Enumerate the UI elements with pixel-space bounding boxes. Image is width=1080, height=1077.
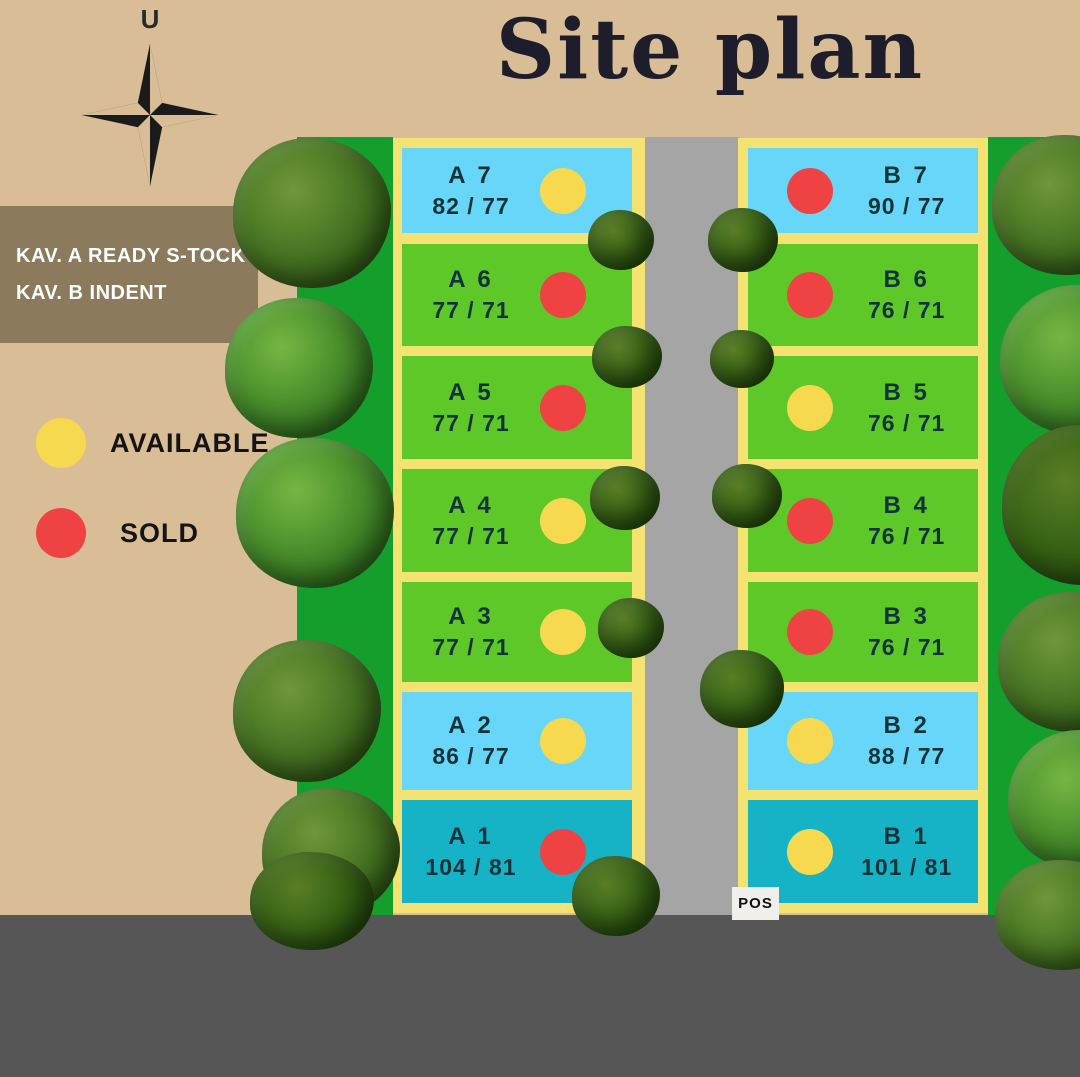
tree-icon bbox=[233, 640, 381, 782]
lot-size: 76 / 71 bbox=[849, 634, 964, 661]
available-dot-icon bbox=[36, 418, 86, 468]
pos-box: POS bbox=[732, 887, 779, 920]
lot-id: B 7 bbox=[849, 162, 964, 190]
lot-a2: A 286 / 77 bbox=[402, 692, 632, 790]
tree-icon bbox=[572, 856, 660, 936]
tree-icon bbox=[592, 326, 662, 388]
lot-size: 76 / 71 bbox=[849, 297, 964, 324]
tree-icon bbox=[710, 330, 774, 388]
lot-id: B 2 bbox=[849, 712, 964, 740]
page-title: Site plan bbox=[420, 2, 1000, 98]
available-status-dot-icon bbox=[787, 385, 833, 431]
lot-id: B 5 bbox=[849, 379, 964, 407]
lot-size: 77 / 71 bbox=[414, 523, 529, 550]
available-status-dot-icon bbox=[787, 718, 833, 764]
lot-size: 77 / 71 bbox=[414, 410, 529, 437]
lot-b2: B 288 / 77 bbox=[748, 692, 978, 790]
available-status-dot-icon bbox=[540, 168, 586, 214]
tree-icon bbox=[250, 852, 374, 950]
tree-icon bbox=[236, 438, 394, 588]
tree-icon bbox=[588, 210, 654, 270]
info-box: KAV. A READY S-TOCK KAV. B INDENT bbox=[0, 206, 258, 343]
lot-b5: B 576 / 71 bbox=[748, 356, 978, 459]
lot-b4: B 476 / 71 bbox=[748, 469, 978, 572]
lot-id: A 4 bbox=[414, 492, 529, 520]
bottom-road bbox=[0, 915, 1080, 1077]
legend-sold-row: SOLD bbox=[36, 508, 199, 558]
tree-icon bbox=[598, 598, 664, 658]
lot-b6: B 676 / 71 bbox=[748, 244, 978, 346]
info-line-kav-a: KAV. A READY S-TOCK bbox=[16, 245, 258, 268]
lot-id: B 3 bbox=[849, 603, 964, 631]
tree-icon bbox=[700, 650, 784, 728]
sold-status-dot-icon bbox=[787, 609, 833, 655]
lot-size: 77 / 71 bbox=[414, 297, 529, 324]
tree-icon bbox=[233, 138, 391, 288]
lot-b1: B 1101 / 81 bbox=[748, 800, 978, 903]
sold-status-dot-icon bbox=[540, 272, 586, 318]
lot-size: 101 / 81 bbox=[849, 854, 964, 881]
lot-size: 77 / 71 bbox=[414, 634, 529, 661]
compass-star-icon bbox=[75, 35, 225, 195]
sold-status-dot-icon bbox=[540, 385, 586, 431]
info-line-kav-b: KAV. B INDENT bbox=[16, 282, 258, 305]
lot-b3: B 376 / 71 bbox=[748, 582, 978, 682]
lot-size: 88 / 77 bbox=[849, 743, 964, 770]
lot-id: A 2 bbox=[414, 712, 529, 740]
available-status-dot-icon bbox=[787, 829, 833, 875]
sold-status-dot-icon bbox=[787, 272, 833, 318]
lot-size: 76 / 71 bbox=[849, 523, 964, 550]
tree-icon bbox=[708, 208, 778, 272]
lot-id: B 1 bbox=[849, 823, 964, 851]
lot-b7: B 790 / 77 bbox=[748, 148, 978, 233]
lot-id: B 6 bbox=[849, 266, 964, 294]
lot-size: 82 / 77 bbox=[414, 193, 529, 220]
sold-status-dot-icon bbox=[787, 168, 833, 214]
lot-id: B 4 bbox=[849, 492, 964, 520]
lot-size: 104 / 81 bbox=[414, 854, 529, 881]
sold-status-dot-icon bbox=[540, 829, 586, 875]
lot-id: A 3 bbox=[414, 603, 529, 631]
lot-id: A 6 bbox=[414, 266, 529, 294]
compass: U bbox=[70, 4, 230, 199]
lot-id: A 5 bbox=[414, 379, 529, 407]
available-status-dot-icon bbox=[540, 718, 586, 764]
tree-icon bbox=[225, 298, 373, 438]
legend-available-row: AVAILABLE bbox=[36, 418, 270, 468]
sold-status-dot-icon bbox=[787, 498, 833, 544]
lot-size: 90 / 77 bbox=[849, 193, 964, 220]
lot-id: A 7 bbox=[414, 162, 529, 190]
tree-icon bbox=[590, 466, 660, 530]
sold-dot-icon bbox=[36, 508, 86, 558]
site-plan: Site plan U KAV. A READY S-TOCK KAV. B I… bbox=[0, 0, 1080, 1077]
lot-size: 76 / 71 bbox=[849, 410, 964, 437]
available-status-dot-icon bbox=[540, 498, 586, 544]
compass-north-label: U bbox=[70, 4, 230, 35]
available-status-dot-icon bbox=[540, 609, 586, 655]
tree-icon bbox=[712, 464, 782, 528]
lot-size: 86 / 77 bbox=[414, 743, 529, 770]
sold-label: SOLD bbox=[120, 518, 199, 549]
lot-id: A 1 bbox=[414, 823, 529, 851]
available-label: AVAILABLE bbox=[110, 428, 270, 459]
